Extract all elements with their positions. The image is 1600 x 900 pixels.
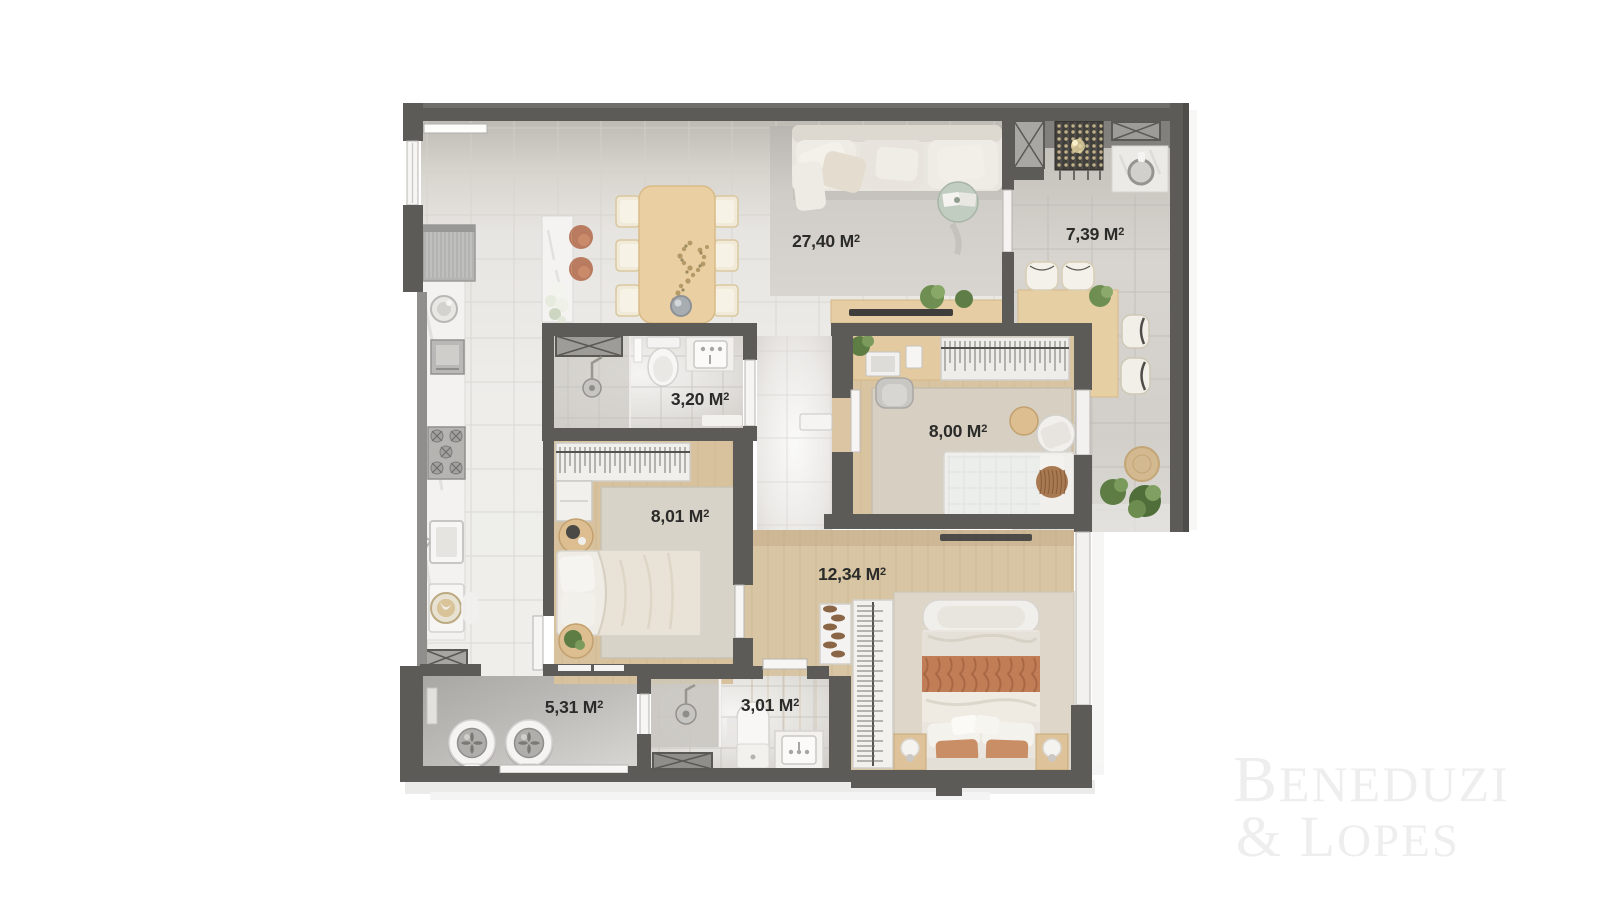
- svg-text:27,40 M2: 27,40 M2: [792, 231, 860, 251]
- svg-text:8,00 M2: 8,00 M2: [929, 421, 987, 441]
- svg-text:3,20 M2: 3,20 M2: [671, 389, 729, 409]
- svg-text:12,34 M2: 12,34 M2: [818, 564, 886, 584]
- svg-text:5,31 M2: 5,31 M2: [545, 697, 603, 717]
- svg-text:3,01 M2: 3,01 M2: [741, 695, 799, 715]
- svg-text:8,01 M2: 8,01 M2: [651, 506, 709, 526]
- svg-text:7,39 M2: 7,39 M2: [1066, 224, 1124, 244]
